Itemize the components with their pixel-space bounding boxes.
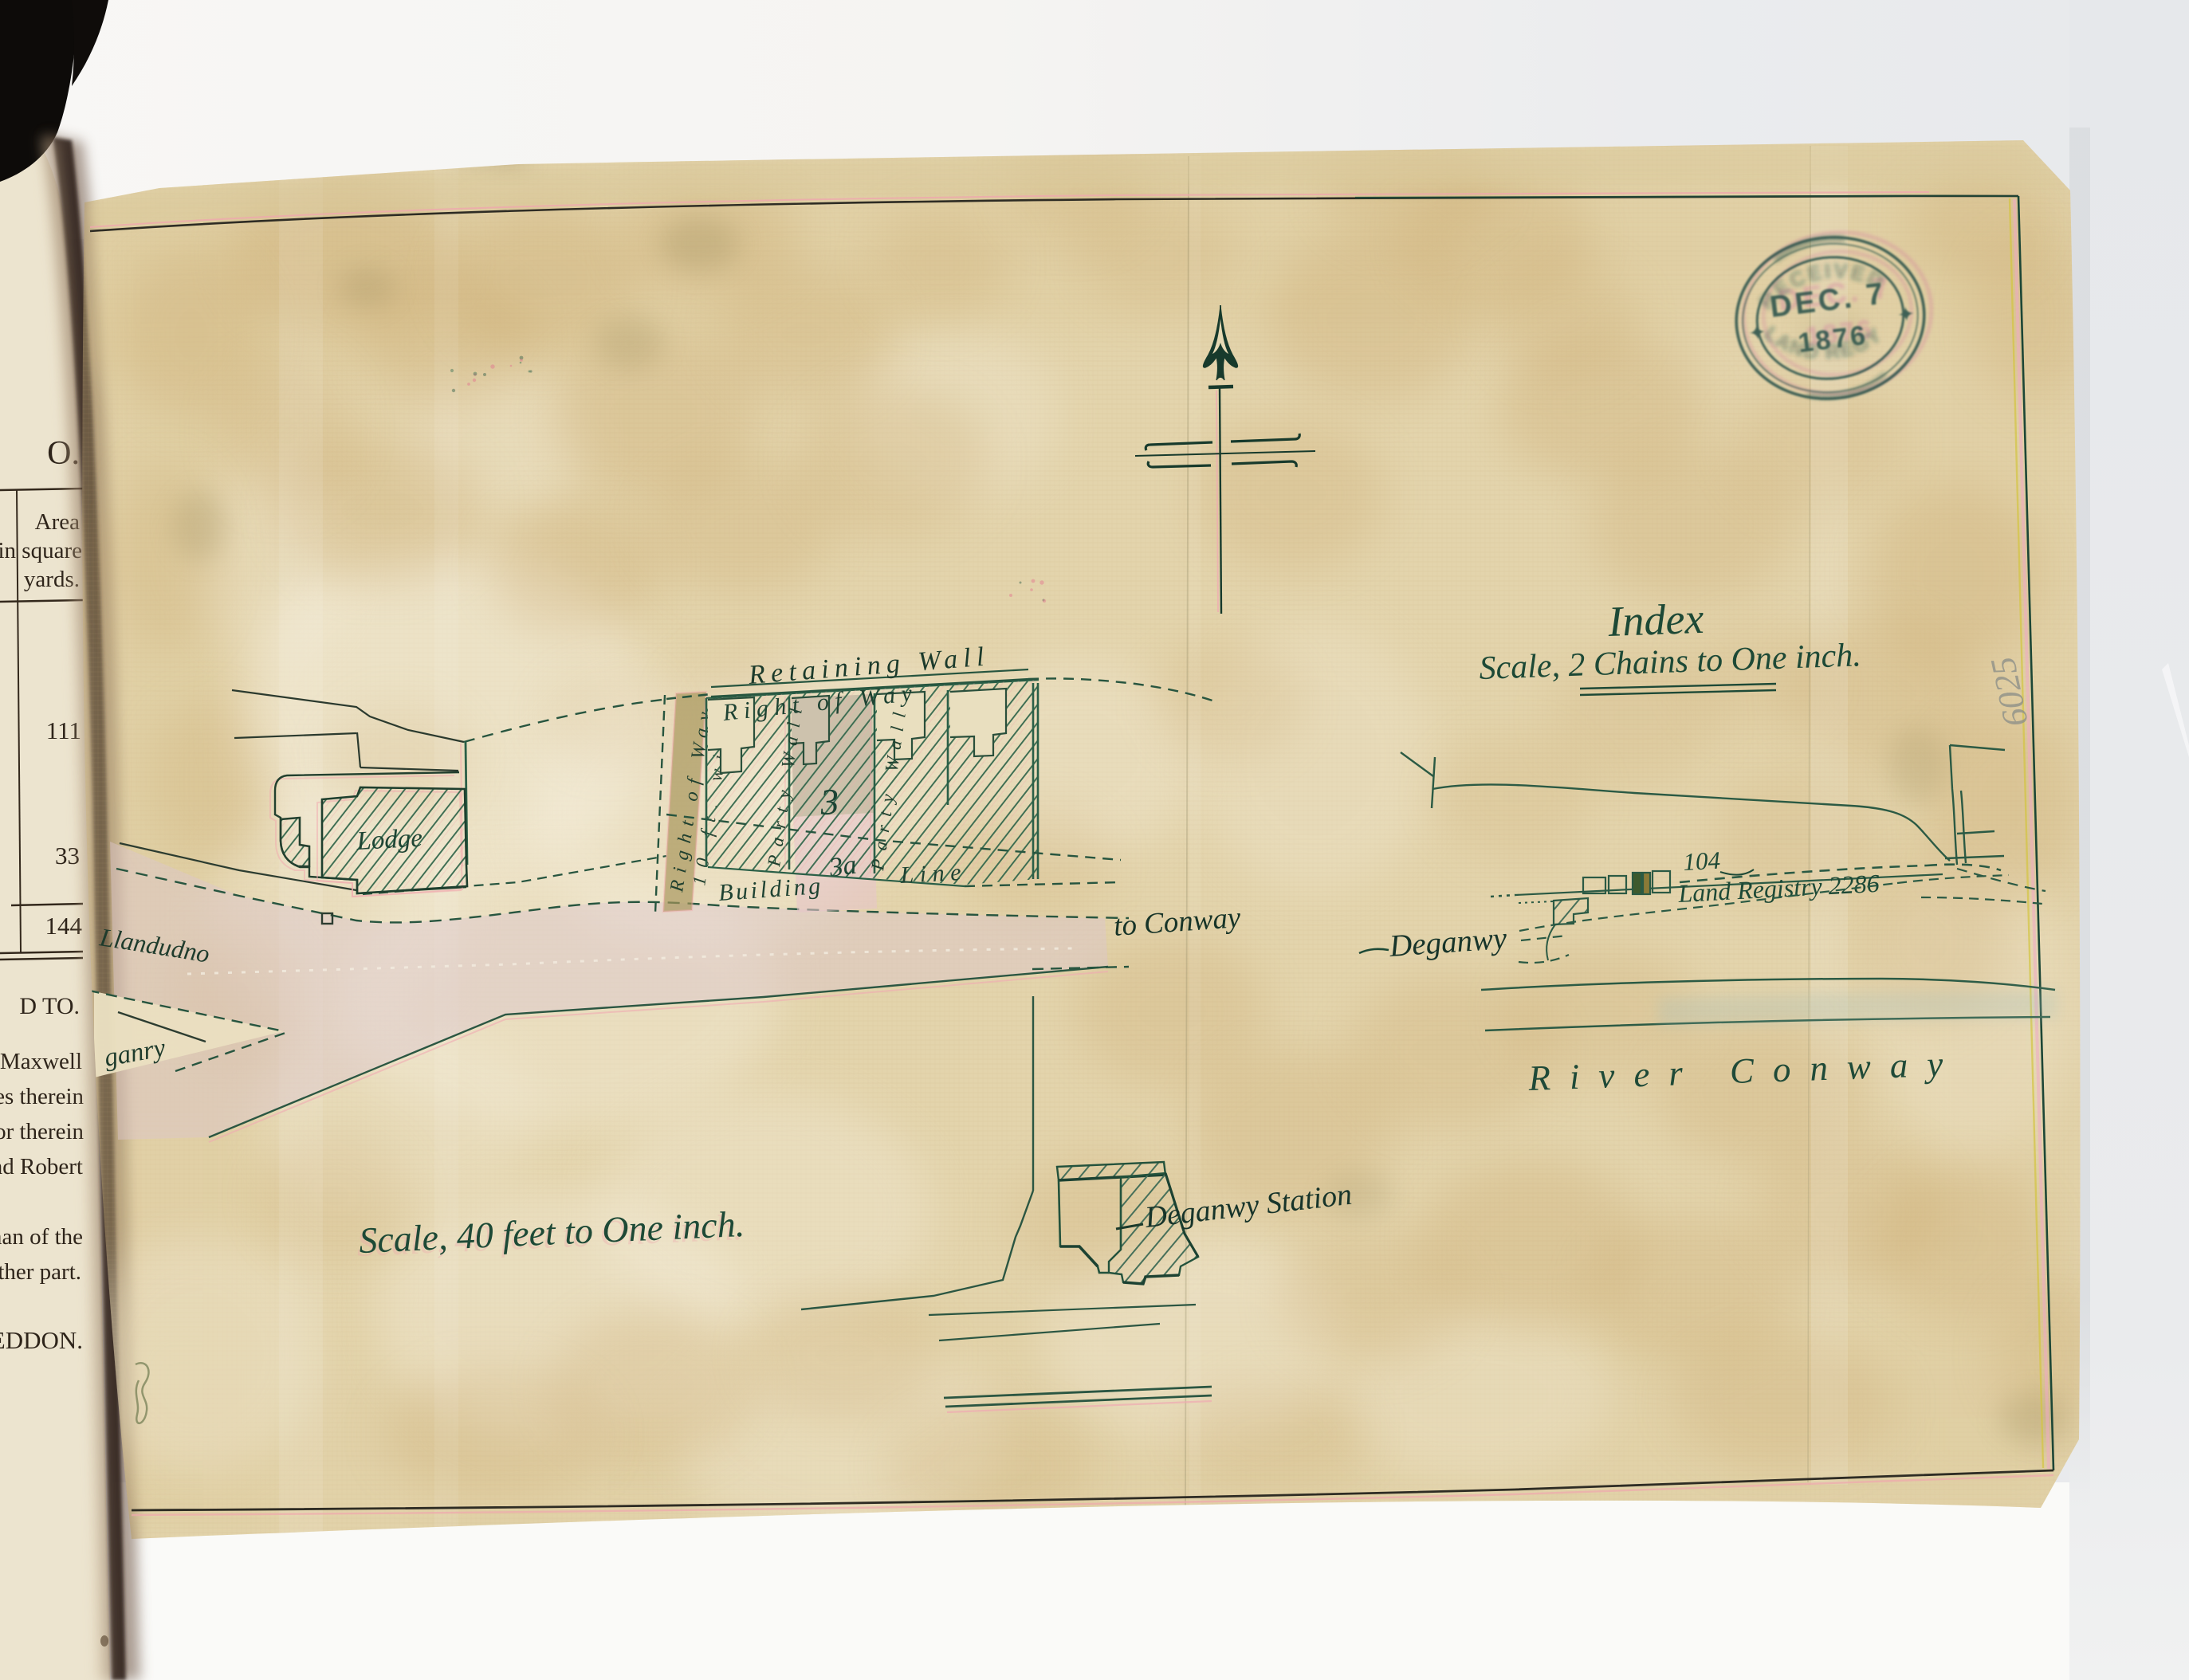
svg-text:✦: ✦ bbox=[1896, 301, 1916, 327]
svg-text:33: 33 bbox=[55, 842, 80, 869]
svg-text:and Robert: and Robert bbox=[0, 1154, 83, 1180]
svg-text:111: 111 bbox=[46, 716, 81, 744]
svg-text:3: 3 bbox=[819, 781, 840, 822]
svg-text:104: 104 bbox=[1683, 846, 1721, 876]
svg-text:s Maxwell: s Maxwell bbox=[0, 1049, 82, 1074]
svg-text:in square: in square bbox=[0, 538, 82, 563]
svg-text:Lodge: Lodge bbox=[356, 824, 423, 856]
svg-text:man of the: man of the bbox=[0, 1224, 83, 1250]
svg-text:✦: ✦ bbox=[1747, 320, 1767, 345]
svg-text:D TO.: D TO. bbox=[19, 993, 80, 1019]
svg-text:lor therein: lor therein bbox=[0, 1119, 84, 1144]
svg-text:es therein: es therein bbox=[0, 1084, 84, 1109]
svg-text:ther part.: ther part. bbox=[0, 1259, 81, 1285]
svg-text:SEDDON.: SEDDON. bbox=[0, 1326, 83, 1354]
svg-text:Index: Index bbox=[1606, 595, 1704, 646]
svg-text:144: 144 bbox=[45, 912, 83, 940]
